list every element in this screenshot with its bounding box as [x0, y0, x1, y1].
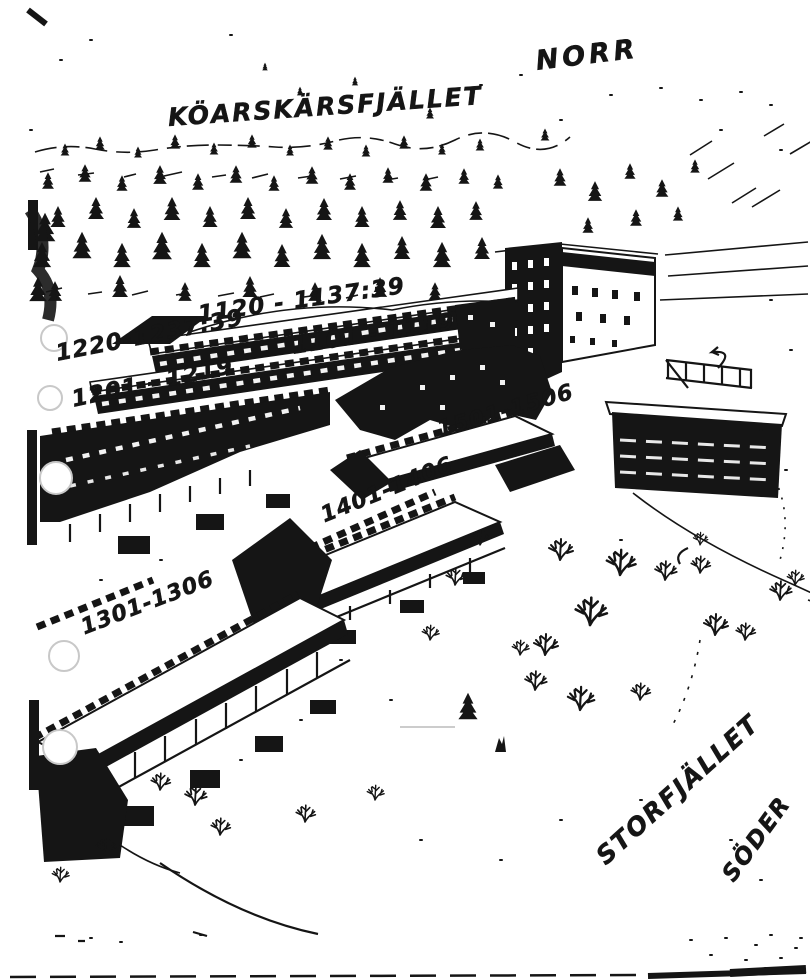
- annex-building: [606, 360, 786, 498]
- foreground-pine: [458, 693, 477, 719]
- punch-hole: [40, 462, 72, 494]
- punch-hole: [38, 386, 62, 410]
- small-figure: [495, 736, 506, 752]
- scan-speckles: [30, 35, 802, 970]
- scanned-site-map: NORR KÖARSKÄRSFJÄLLET 1120 - 1137:39 122…: [0, 0, 810, 979]
- annex-dark-facade: [612, 412, 782, 498]
- punch-hole: [43, 730, 77, 764]
- bottom-scan-line: [10, 975, 650, 977]
- deck-railing: [666, 360, 752, 388]
- punch-hole: [49, 641, 79, 671]
